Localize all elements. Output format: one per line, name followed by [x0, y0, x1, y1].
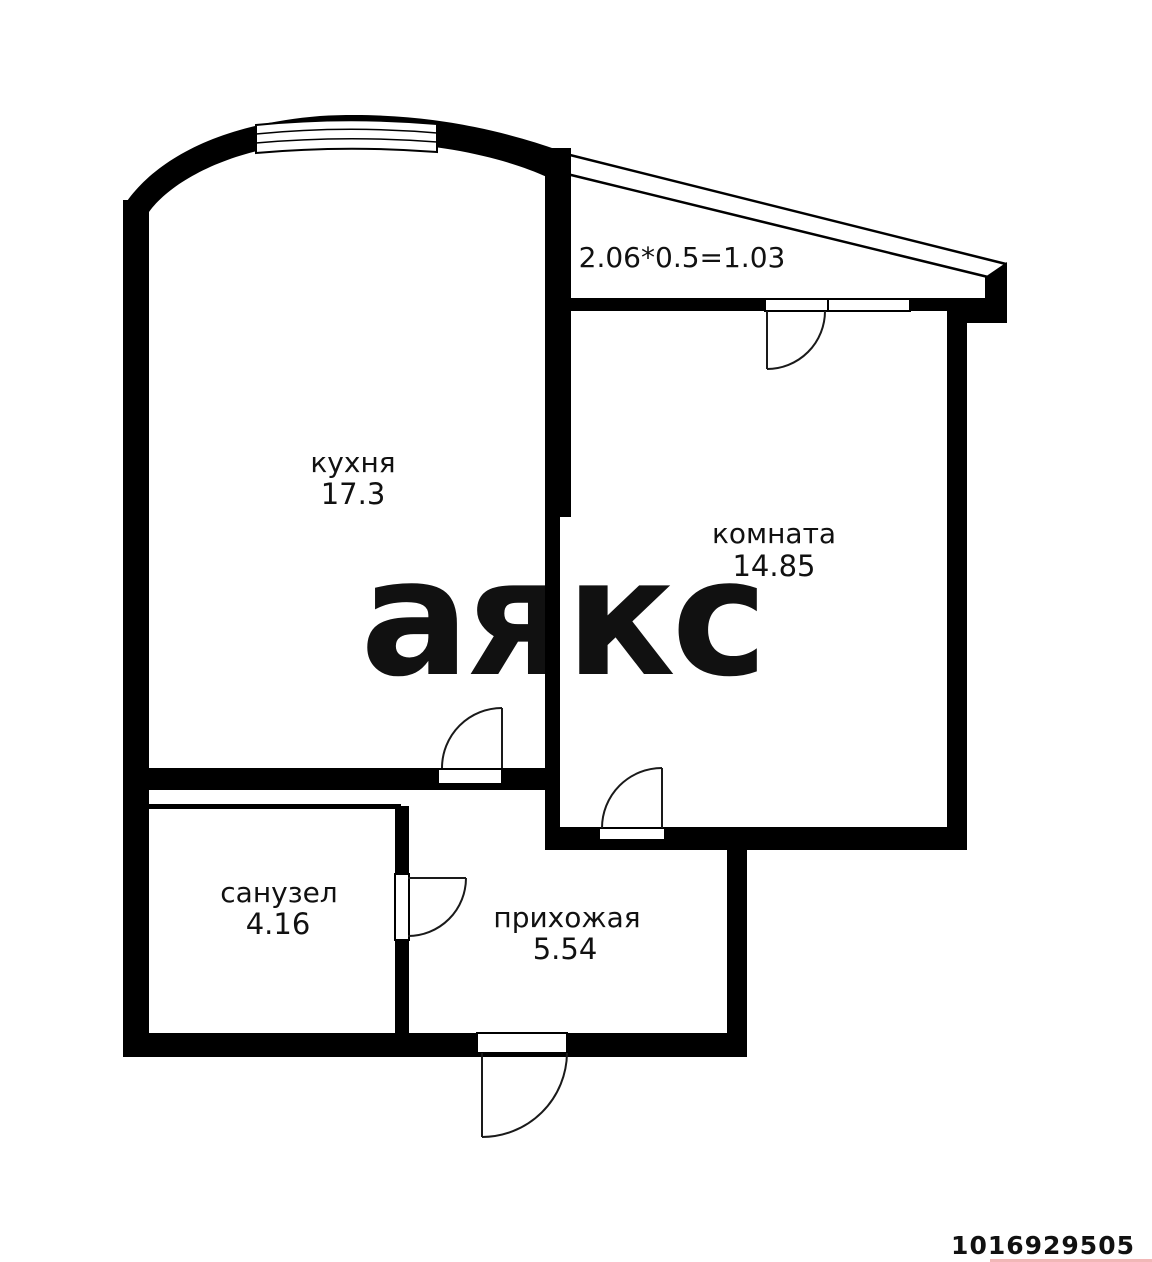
kitchen-window — [256, 120, 437, 153]
wall-room-right — [947, 311, 967, 850]
floor-plan-canvas: аякс — [0, 0, 1152, 1262]
wall-room-top-right — [910, 298, 985, 311]
kitchen-label: кухня — [310, 446, 395, 479]
wall-room-top-left — [560, 298, 765, 311]
balcony-door — [765, 299, 828, 369]
listing-id: 1016929505 — [951, 1231, 1135, 1260]
wall-center-lower — [545, 517, 560, 850]
floor-plan: аякс — [0, 0, 1152, 1262]
wall-balcony-cap — [985, 262, 1007, 323]
doors — [395, 299, 828, 1137]
room-door-swing-arc — [602, 768, 662, 828]
hallway-area: 5.54 — [533, 932, 598, 966]
wall-bottom-exterior — [123, 1033, 747, 1057]
wall-bathroom-top-partition — [147, 804, 401, 809]
wall-center-upper — [545, 148, 571, 517]
listing-id-block: 1016929505 — [951, 1231, 1152, 1262]
living-room-area: 14.85 — [732, 549, 815, 583]
living-room-label: комната — [712, 517, 836, 550]
entrance-door-swing-arc — [482, 1053, 567, 1137]
bathroom-door — [395, 874, 466, 940]
kitchen-door — [438, 708, 502, 784]
entrance-door — [477, 1033, 567, 1137]
agency-watermark: аякс — [360, 525, 763, 713]
entrance-door-sill — [477, 1033, 567, 1053]
balcony-door-swing-arc — [767, 311, 825, 369]
kitchen-door-sill — [438, 769, 502, 784]
room-door-sill — [599, 828, 665, 840]
room-door — [599, 768, 665, 840]
wall-left-exterior — [123, 200, 149, 1057]
bathroom-label: санузел — [220, 876, 337, 909]
kitchen-door-swing-arc — [442, 708, 502, 768]
bathroom-door-sill — [395, 874, 409, 940]
wall-hallway-right — [727, 840, 747, 1035]
bathroom-door-swing-arc — [408, 878, 466, 936]
kitchen-window-frame — [256, 120, 437, 153]
balcony-door-sill — [765, 299, 828, 311]
hallway-label: прихожая — [493, 901, 640, 934]
kitchen-area: 17.3 — [321, 477, 386, 511]
bathroom-area: 4.16 — [246, 907, 311, 941]
balcony-window-sill — [828, 299, 910, 311]
balcony-dimension-note: 2.06*0.5=1.03 — [579, 241, 786, 274]
